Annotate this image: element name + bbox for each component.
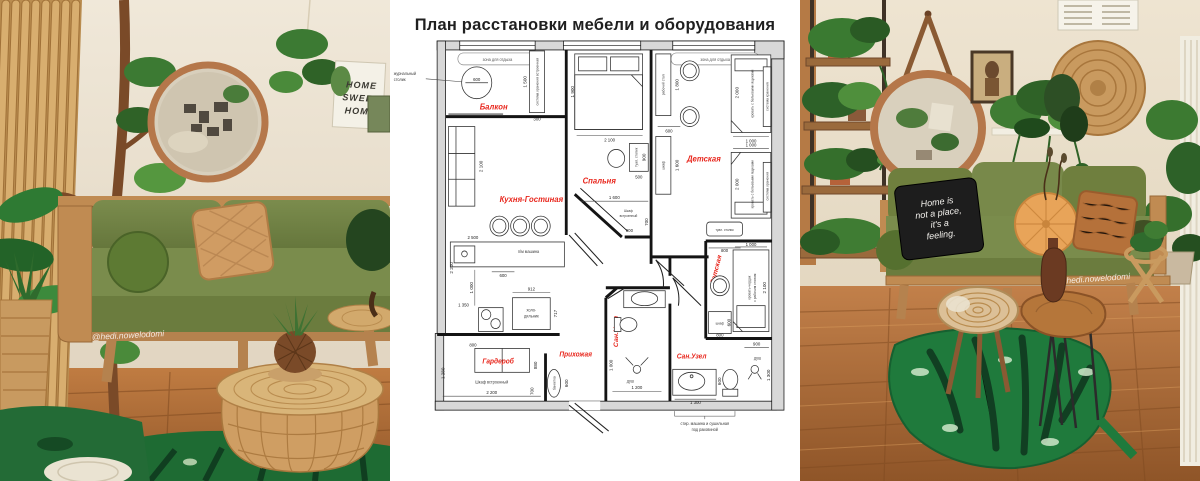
desk-label: рабочий стол (662, 74, 666, 95)
dim-wardrobe-880: 880 (533, 361, 538, 369)
dim-kids2-closet-600: 600 (726, 318, 731, 326)
plan-title: План расстановки мебели и оборудования (398, 16, 792, 35)
bench-label: банкетка (552, 376, 556, 390)
dishwasher-label: п/м машина (518, 249, 540, 254)
vent-grille (1058, 0, 1138, 30)
dim-storage-h: 1 500 (523, 76, 528, 88)
loft-bed-label-1: кровать-чердак (748, 275, 752, 300)
room-balcony: Балкон (480, 102, 508, 111)
bathroom-2: Сан.Узел 600 1 300 900 душ 1 300 стир. м… (673, 341, 771, 432)
kids2-closet-label: шкаф (716, 321, 725, 325)
dim-bath1-1000: 1 000 (609, 359, 614, 371)
dim-balcony-table: 600 (473, 77, 481, 82)
kids-room-2: 800 Детская 1 000 кровать-чердак с рабоч… (709, 242, 769, 338)
round-green-cushion (108, 232, 168, 292)
kids-vanity-label: туал. столик (715, 228, 734, 232)
dim-loft-1000: 1 000 (746, 242, 757, 247)
dim-stove: 1 350 (458, 303, 469, 308)
bath2-door (673, 278, 701, 306)
dim-fridge-d: 717 (553, 309, 558, 317)
dim-bedroom-1600: 1 600 (609, 195, 620, 200)
dim-bed-2100: 2 100 (604, 137, 615, 142)
sign-line-1: HOME (346, 79, 377, 91)
round-mirror (151, 65, 265, 179)
room-kids: Детская (686, 154, 721, 163)
dim-kitchen-600: 600 (500, 273, 508, 278)
dim-desk-1800: 1 800 (675, 79, 680, 91)
rest-zone-label-2: зона для отдыха (700, 57, 730, 62)
bedroom-door (569, 233, 603, 266)
hallway: Прихожая банкетка 600 (547, 351, 592, 397)
woven-pillow (191, 201, 274, 281)
kitchen-living: 2 100 Кухня-Гостиная 2 500 п/м машина 60… (448, 127, 564, 332)
dim-bed1-2000: 2 000 (735, 86, 740, 98)
wardrobe-room: 800 Гардероб Шкаф встроенный 1 280 880 7… (441, 342, 541, 396)
balcony-storage-label: система хранения встроенная (536, 58, 540, 106)
room-bathroom2: Сан.Узел (677, 353, 707, 360)
shower2-label: душ (754, 355, 761, 360)
bed2-label: кровать с бельевыми ящиками (750, 160, 754, 208)
round-orange-pillow (1015, 193, 1077, 255)
bedroom-closet-label-1: Шкаф (624, 209, 633, 213)
loft-bed-label-2: с рабочим столом (753, 273, 757, 302)
dim-loft-2100: 2 100 (762, 282, 767, 294)
dim-desk-600: 600 (665, 128, 673, 133)
kids-closet-label: шкаф (662, 161, 666, 170)
dim-kids2-closet-800: 800 (716, 332, 724, 337)
bed1-storage-label: система хранения (766, 82, 770, 111)
rest-zone-label-1: зона для отдыха (483, 57, 513, 62)
shower1-label: душ (627, 378, 634, 383)
dim-kids2-800: 800 (721, 248, 729, 253)
dim-sofa: 2 100 (478, 160, 483, 172)
bed1-label: кровать с бельевыми ящиками (750, 69, 754, 117)
dim-kitchen: 2 500 (468, 235, 479, 240)
dim-kitchen-col: 1 000 (469, 282, 474, 294)
dim-bedroom-700: 700 (644, 218, 649, 226)
room-bedroom: Спальня (583, 176, 617, 185)
collage: HOME SWEET HOME (0, 0, 1200, 481)
floor-plan: зона для отдыха зона для отдыха (390, 37, 800, 437)
wardrobe-closet-label: Шкаф встроенный (475, 379, 508, 384)
washer-note-1: стир. машина и сушильная (681, 421, 730, 426)
coffee-table-label-1: журнальный (394, 71, 416, 76)
dim-bath2-900: 900 (753, 341, 761, 346)
dim-wardrobe-700: 700 (529, 387, 534, 395)
fridge-label-2: дильник (524, 313, 539, 318)
green-art-frame (368, 96, 390, 132)
vanity-label: туал. столик (634, 147, 638, 167)
quote-pillow: Home is not a place, it's a feeling. (894, 177, 984, 260)
room-wardrobe: Гардероб (482, 357, 514, 365)
right-room-photo: Home is not a place, it's a feeling. (800, 0, 1200, 481)
framed-art (972, 52, 1012, 102)
washer-note-2: под раковиной (692, 427, 718, 432)
room-kitchen-living: Кухня-Гостиная (500, 195, 564, 204)
dim-bench: 600 (564, 379, 569, 387)
floor-plan-panel: План расстановки мебели и оборудования (390, 0, 800, 481)
bathroom-1: Сан.Узел душ 1 000 1 200 (609, 291, 666, 391)
dim-bedroom-900: 900 (626, 228, 634, 233)
dim-bath2-1300v: 1 300 (766, 369, 771, 381)
dim-bed2-1000: 1 000 (746, 142, 757, 147)
kids-room: рабочий стол 1 800 600 шкаф 1 600 Детска… (656, 54, 771, 236)
dim-left-wall: 2 200 (449, 262, 454, 274)
rust-pillow (1072, 190, 1138, 256)
bedroom-closet-label-2: встроенный (620, 214, 638, 218)
dim-bed2-2000: 2 000 (735, 178, 740, 190)
room-hallway: Прихожая (559, 351, 592, 358)
dim-bed-1900: 1 900 (570, 85, 575, 97)
dim-bath1-1200: 1 200 (632, 385, 643, 390)
bedroom: 1 900 2 100 туал. столик 900 500 Спальня… (570, 54, 649, 237)
dim-wardrobe-1280: 1 280 (441, 367, 446, 379)
left-room-photo: HOME SWEET HOME (0, 0, 390, 481)
bed2-storage-label: система хранения (766, 172, 770, 201)
dim-storage-w: 300 (533, 116, 541, 121)
fridge-label-1: холо- (527, 308, 537, 313)
dim-wardrobe-2200: 2 200 (486, 390, 497, 395)
dim-kids-closet-1600: 1 600 (675, 159, 680, 171)
dim-fridge-w: 912 (528, 287, 536, 292)
dim-bath2-1300: 1 300 (690, 400, 701, 405)
dim-vanity-900: 900 (642, 153, 647, 161)
dim-wardrobe-800: 800 (469, 342, 477, 347)
dim-bath2-600: 600 (717, 377, 722, 385)
windows (460, 41, 755, 50)
dim-vanity-500: 500 (635, 174, 643, 179)
coffee-table-label-2: столик (394, 77, 406, 82)
